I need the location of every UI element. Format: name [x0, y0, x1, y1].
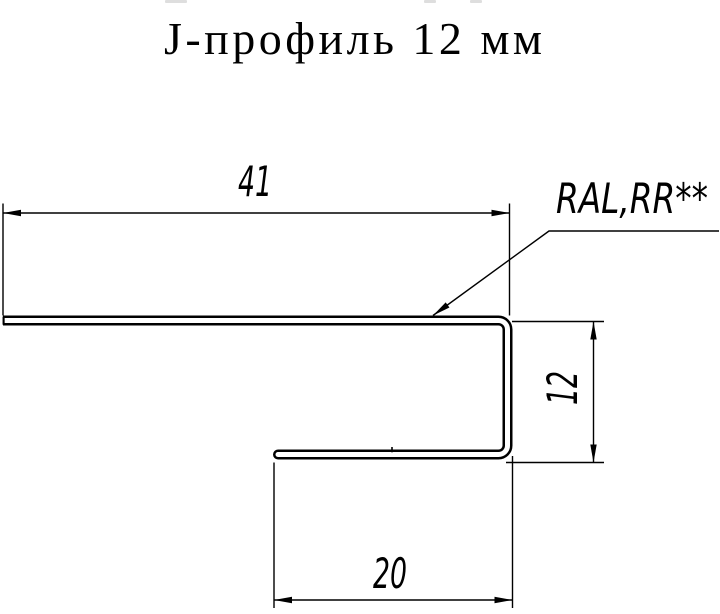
dimension-value-top-flange: 41: [238, 157, 272, 206]
j-profile-technical-drawing: J-профиль 12 мм 41: [0, 0, 720, 614]
leader-line: [433, 231, 719, 316]
dimension-value-web-height: 12: [538, 371, 587, 405]
dimension-value-bottom-lip: 20: [373, 549, 407, 598]
arrowhead-left-icon: [274, 597, 292, 603]
arrowhead-left-icon: [3, 210, 21, 216]
drawing-canvas: J-профиль 12 мм 41: [0, 0, 720, 614]
page-title: J-профиль 12 мм: [164, 13, 542, 64]
arrowhead-right-icon: [492, 210, 510, 216]
coating-label: RAL,RR**: [556, 174, 708, 223]
dimension-bottom-lip: 20: [274, 456, 513, 608]
arrowhead-up-icon: [590, 322, 596, 340]
profile-body-outline: [3, 321, 508, 455]
arrowhead-right-icon: [495, 597, 513, 603]
dimension-web-height: 12: [506, 322, 604, 463]
arrowhead-down-icon: [590, 445, 596, 463]
dimension-top-flange: 41: [3, 157, 510, 316]
top-crop-artifacts: [165, 0, 482, 3]
profile-metal-outline: [3, 317, 508, 455]
profile-body-core: [3, 321, 508, 455]
coating-leader-note: RAL,RR**: [431, 174, 719, 318]
